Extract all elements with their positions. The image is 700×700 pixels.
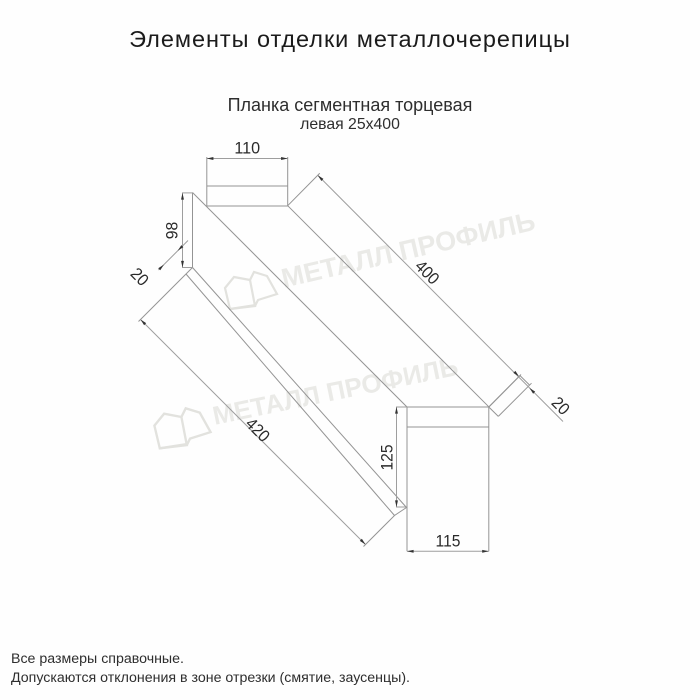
svg-text:125: 125 [378,444,397,470]
svg-text:98: 98 [163,222,182,239]
svg-text:420: 420 [242,414,274,446]
svg-text:115: 115 [436,532,461,551]
svg-text:20: 20 [548,393,574,419]
svg-text:20: 20 [127,264,153,290]
svg-text:110: 110 [234,138,260,157]
svg-text:400: 400 [411,257,443,289]
